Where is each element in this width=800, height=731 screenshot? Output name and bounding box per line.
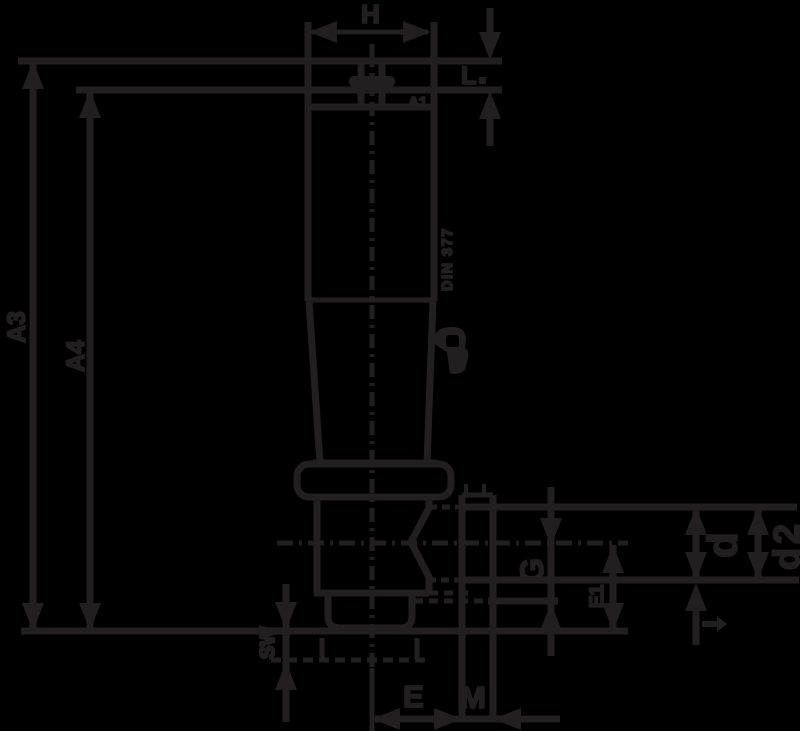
svg-text:A4: A4 — [62, 340, 90, 372]
svg-text:DIN 377: DIN 377 — [440, 227, 456, 291]
svg-text:SW: SW — [257, 627, 279, 659]
svg-text:A3: A3 — [3, 311, 31, 343]
svg-text:E1: E1 — [587, 584, 608, 608]
svg-text:E: E — [403, 679, 424, 714]
svg-text:d2: d2 — [766, 520, 800, 570]
svg-text:G: G — [514, 558, 550, 583]
svg-text:d: d — [699, 532, 746, 558]
svg-text:L: L — [461, 62, 476, 90]
svg-text:H: H — [361, 0, 380, 29]
svg-text:A1: A1 — [408, 94, 427, 111]
svg-text:M: M — [460, 680, 486, 715]
